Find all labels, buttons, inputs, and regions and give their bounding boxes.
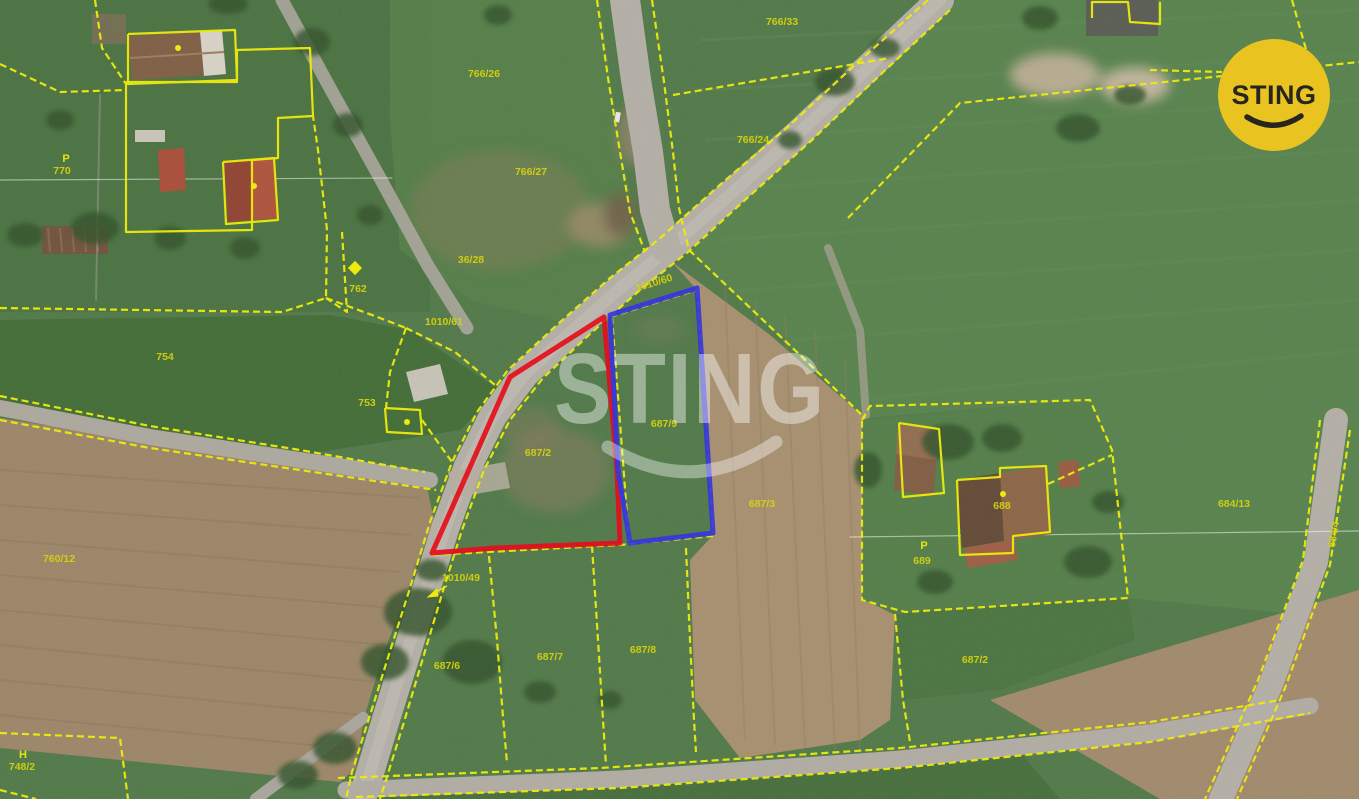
- logo-text: STING: [1231, 80, 1316, 110]
- cadastral-map: 766/33766/26766/24766/2777036/287621010/…: [0, 0, 1359, 799]
- map-image[interactable]: 766/33766/26766/24766/2777036/287621010/…: [0, 0, 1359, 799]
- watermark-text: STING: [554, 333, 826, 445]
- sting-logo: STING: [1218, 39, 1330, 151]
